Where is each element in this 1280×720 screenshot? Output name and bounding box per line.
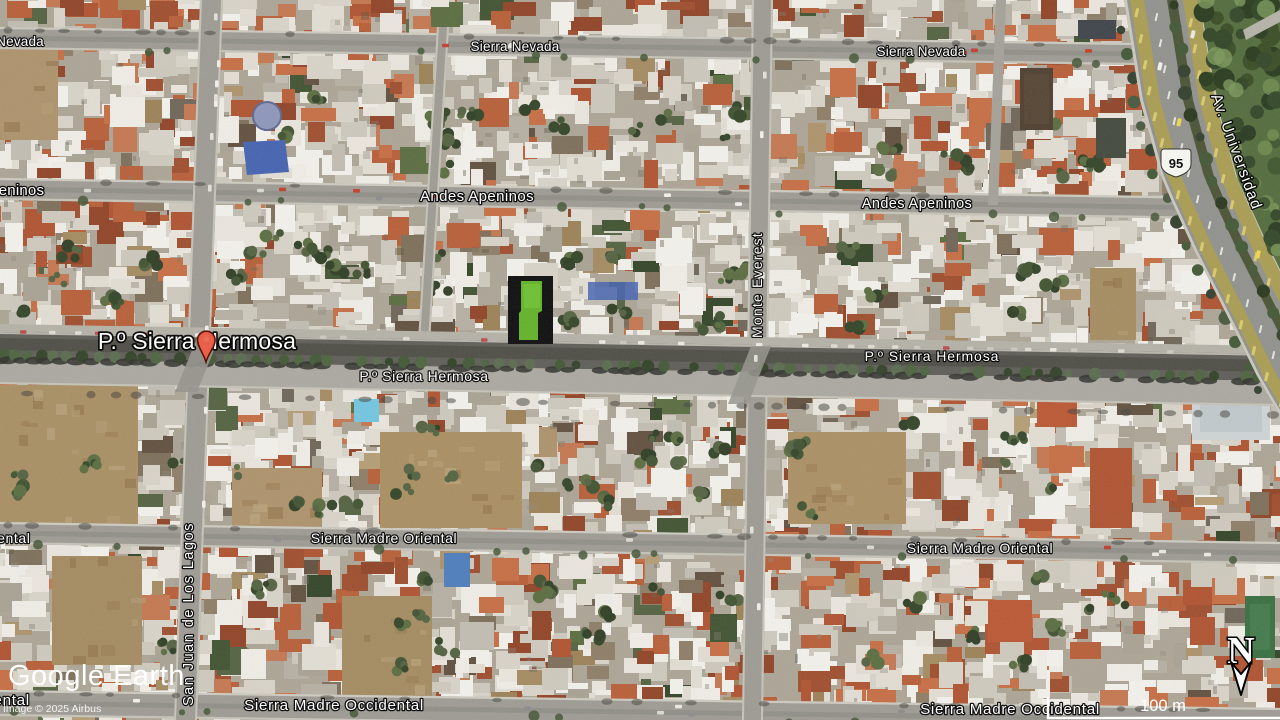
svg-text:Andes Apeninos: Andes Apeninos bbox=[420, 188, 534, 205]
svg-text:Sierra Madre Oriental: Sierra Madre Oriental bbox=[907, 540, 1053, 556]
svg-text:Sierra Nevada: Sierra Nevada bbox=[877, 44, 966, 59]
svg-text:Apeninos: Apeninos bbox=[0, 182, 44, 199]
svg-text:Sierra Madre Oriental: Sierra Madre Oriental bbox=[0, 530, 30, 546]
svg-text:Sierra Madre Oriental: Sierra Madre Oriental bbox=[311, 530, 457, 546]
svg-text:100 m: 100 m bbox=[1140, 697, 1186, 715]
svg-text:Andes Apeninos: Andes Apeninos bbox=[862, 196, 972, 212]
svg-text:Sierra Nevada: Sierra Nevada bbox=[471, 39, 560, 54]
svg-text:Sierra Madre Occidental: Sierra Madre Occidental bbox=[920, 701, 1100, 718]
svg-text:Image © 2025 Airbus: Image © 2025 Airbus bbox=[3, 703, 101, 715]
svg-text:P.º Sierra Hermosa: P.º Sierra Hermosa bbox=[359, 368, 488, 384]
svg-text:Sierra Madre Occidental: Sierra Madre Occidental bbox=[244, 697, 424, 714]
svg-text:Google Earth: Google Earth bbox=[8, 660, 185, 692]
svg-text:P.º Sierra Hermosa: P.º Sierra Hermosa bbox=[865, 348, 1000, 364]
svg-text:95: 95 bbox=[1169, 156, 1183, 171]
svg-text:Monte Everest: Monte Everest bbox=[749, 232, 765, 338]
svg-text:Sierra Nevada: Sierra Nevada bbox=[0, 34, 44, 49]
